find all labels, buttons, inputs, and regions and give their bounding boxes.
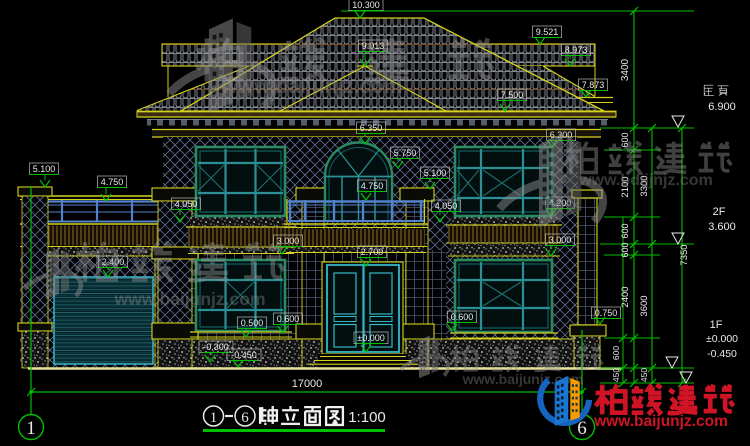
svg-text:0.600: 0.600 (277, 314, 300, 324)
svg-text:0.750: 0.750 (595, 308, 618, 318)
svg-text:-0.300: -0.300 (203, 342, 229, 352)
svg-text:0.500: 0.500 (241, 318, 264, 328)
svg-text:1F: 1F (710, 319, 723, 331)
svg-text:1: 1 (26, 418, 36, 439)
svg-text:3.600: 3.600 (708, 221, 736, 233)
svg-text:5.100: 5.100 (33, 164, 56, 174)
svg-text:6.900: 6.900 (708, 101, 736, 113)
svg-text:4.750: 4.750 (361, 181, 384, 191)
svg-text:10.300: 10.300 (352, 0, 380, 10)
svg-text:450: 450 (611, 368, 621, 382)
svg-text:600: 600 (620, 223, 630, 238)
svg-text:6.350: 6.350 (360, 123, 383, 133)
svg-text:-0.450: -0.450 (231, 350, 257, 360)
svg-text:0.600: 0.600 (451, 312, 474, 322)
svg-text:2.700: 2.700 (361, 247, 384, 257)
svg-text:6: 6 (241, 410, 249, 426)
svg-text:3.000: 3.000 (549, 235, 572, 245)
svg-text:5.100: 5.100 (424, 168, 447, 178)
svg-text:5.750: 5.750 (394, 148, 417, 158)
svg-text:4.750: 4.750 (101, 177, 124, 187)
svg-text:-0.450: -0.450 (707, 348, 737, 360)
svg-text:3400: 3400 (620, 58, 631, 81)
svg-text:www.bdijjnjz.com: www.bdijjnjz.com (578, 172, 713, 189)
svg-text:450: 450 (639, 368, 649, 382)
svg-text:2400: 2400 (620, 286, 631, 307)
svg-text:9.521: 9.521 (536, 27, 559, 37)
svg-text:2F: 2F (713, 206, 726, 218)
svg-text:www.baijunjz.com: www.baijunjz.com (113, 289, 265, 309)
svg-text:7.500: 7.500 (501, 90, 524, 100)
svg-text:4.050: 4.050 (435, 201, 458, 211)
svg-text:1:100: 1:100 (348, 409, 386, 426)
svg-text:17000: 17000 (292, 378, 323, 390)
svg-text:4.050: 4.050 (175, 199, 198, 209)
svg-text:7.873: 7.873 (582, 80, 605, 90)
svg-text:1: 1 (210, 410, 218, 426)
svg-text:8.973: 8.973 (565, 45, 588, 55)
svg-text:±0.000: ±0.000 (357, 333, 384, 343)
svg-text:7350: 7350 (679, 244, 690, 265)
svg-text:www.baijunjz.com: www.baijunjz.com (220, 75, 402, 98)
svg-text:600: 600 (620, 242, 630, 257)
svg-text:www.baijunjz.com: www.baijunjz.com (593, 413, 728, 430)
svg-text:3600: 3600 (639, 295, 650, 316)
svg-text:600: 600 (611, 346, 621, 360)
svg-text:±0.000: ±0.000 (706, 333, 738, 345)
